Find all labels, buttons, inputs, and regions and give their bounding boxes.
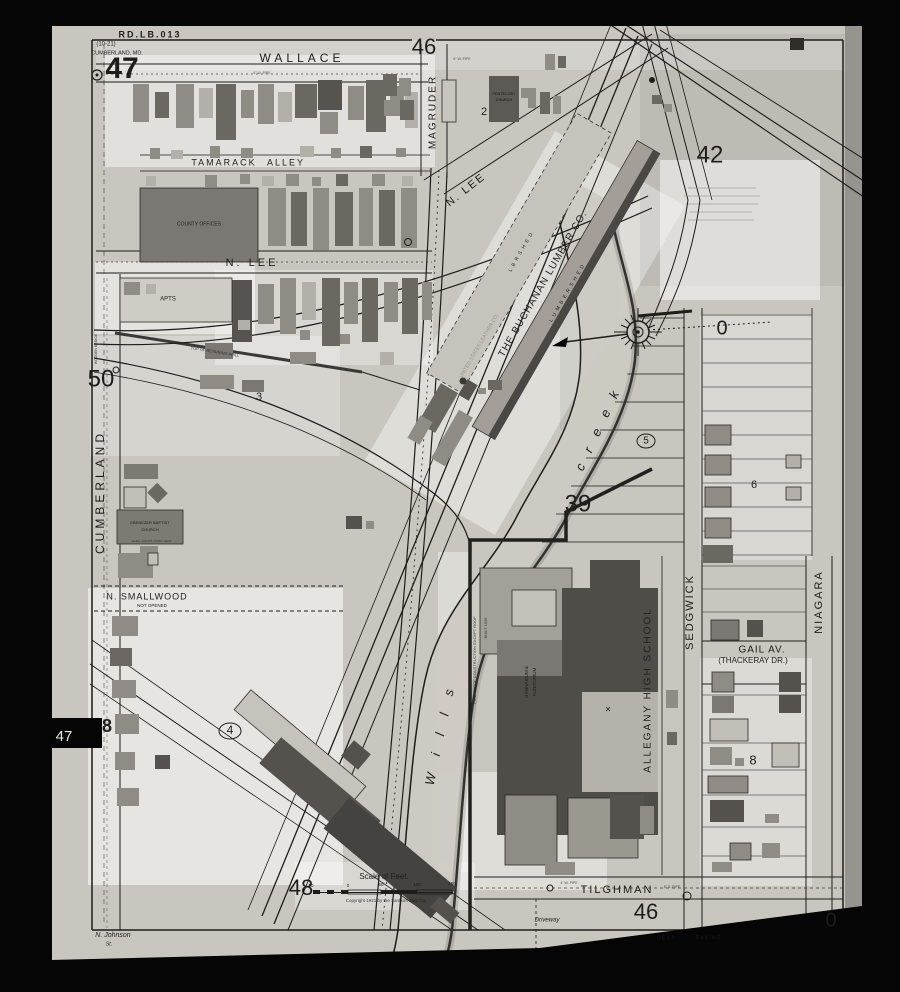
building: [384, 282, 398, 322]
building: [664, 104, 672, 112]
building: [772, 743, 799, 767]
building: [205, 175, 217, 187]
building: [545, 54, 555, 70]
building: [335, 192, 353, 246]
building: [262, 176, 274, 186]
edge-tab-47: 47: [56, 728, 73, 745]
adjacent-sheet-50: 50: [88, 365, 115, 392]
scan-black-margin: [0, 0, 900, 26]
copyright: Copyright 1921 by the Sanborn Map Co.: [346, 898, 427, 903]
building: [730, 843, 751, 860]
map-label: 6" W. PIPE: [253, 71, 271, 75]
building: [176, 84, 194, 128]
map-label: WOODEN BRIDGE: [94, 333, 98, 364]
building: [238, 320, 250, 330]
map-label: NOT OPENED: [137, 603, 167, 608]
utility-symbol: [649, 77, 655, 83]
building: [331, 148, 341, 158]
driveway-label: Driveway: [535, 918, 561, 924]
building: [291, 192, 307, 246]
map-label: 150: [448, 881, 456, 886]
building: [133, 84, 149, 122]
building: [528, 88, 536, 108]
map-label: R A V I N E: [695, 935, 721, 941]
building: [705, 518, 731, 538]
building: [210, 146, 220, 158]
street-tilghman: TILGHMAN: [581, 884, 654, 896]
street-gail-av: GAIL AV.: [738, 645, 785, 656]
building: [280, 278, 296, 334]
building: [124, 464, 158, 479]
building: [344, 282, 358, 324]
utility-symbol: [636, 330, 640, 334]
building: [497, 640, 562, 676]
building: [360, 146, 372, 158]
map-label: CHURCH: [496, 98, 513, 102]
allegany-high-school-label: ALLEGANY HIGH SCHOOL: [643, 607, 654, 772]
building: [300, 330, 310, 340]
building: [422, 282, 432, 320]
building: [779, 695, 801, 713]
building: [380, 352, 394, 365]
map-label: ALLEY: [267, 157, 305, 167]
block-8: 8: [749, 752, 756, 767]
building: [735, 758, 744, 766]
building: [402, 278, 418, 334]
block-5: 5: [643, 436, 649, 447]
sheet-edge-48: 8: [102, 716, 112, 736]
building: [399, 78, 411, 96]
building: [115, 752, 135, 770]
building: [318, 80, 342, 110]
building: [286, 174, 299, 186]
building: [366, 521, 374, 529]
building: [258, 284, 274, 324]
building: [488, 380, 502, 390]
building: [117, 788, 139, 806]
map-label: 50: [378, 882, 384, 887]
map-label: BUILT 1926: [483, 617, 488, 639]
building: [710, 747, 732, 765]
building: [779, 672, 801, 692]
building: [232, 280, 252, 342]
building: [240, 174, 250, 184]
map-label: PENTECOST: [492, 92, 516, 96]
map-label: 4" W. PIPE: [560, 881, 578, 885]
building: [400, 100, 414, 120]
building: [124, 487, 146, 508]
building: [708, 776, 748, 793]
building: [313, 188, 329, 250]
building: [155, 755, 170, 769]
street-cumberland: CUMBERLAND: [93, 430, 107, 554]
building: [112, 616, 138, 636]
map-label: (10-21): [96, 42, 115, 48]
building: [545, 862, 575, 875]
building: [505, 795, 557, 865]
building: [712, 672, 734, 692]
building: [478, 388, 486, 394]
building: [348, 86, 364, 120]
building: [442, 80, 456, 122]
map-label: ×: [605, 705, 611, 716]
building: [610, 795, 644, 839]
ebenezer-baptist-church-label: EBENEZER BAPTIST: [130, 520, 170, 525]
building: [295, 84, 317, 118]
map-label: 8" S. PIPE: [664, 885, 681, 889]
block-0-bottom: 0: [825, 909, 836, 931]
building: [359, 188, 373, 246]
building: [150, 148, 160, 159]
scan-patch: [660, 160, 820, 300]
sanborn-map-scan: (10-21)RD.LB.013CUMBERLAND, MD.4746WALLA…: [0, 0, 900, 992]
block-4: 4: [227, 723, 234, 737]
building: [667, 732, 677, 745]
building: [112, 680, 136, 698]
building: [711, 620, 739, 640]
building: [703, 545, 733, 563]
building: [346, 516, 362, 529]
building: [553, 96, 561, 114]
deep-ravine-label: D E E P: [657, 935, 675, 941]
building: [278, 92, 292, 122]
building: [384, 100, 396, 116]
adjacent-sheet-39: 39: [565, 490, 592, 517]
map-label: 6" W. PIPE: [453, 57, 471, 61]
building: [710, 800, 744, 822]
sheet-number-47: 47: [105, 52, 138, 85]
building: [313, 892, 453, 893]
map-label: GYMNASIUM &: [524, 666, 529, 698]
building: [512, 590, 556, 626]
street-magruder: MAGRUDER: [428, 75, 439, 149]
scale-title: Scale of Feet.: [359, 872, 408, 881]
apartments-label: APTS: [160, 297, 176, 303]
building: [790, 38, 804, 50]
building: [712, 862, 732, 872]
sanborn-map-svg: (10-21)RD.LB.013CUMBERLAND, MD.4746WALLA…: [0, 0, 900, 992]
building: [640, 806, 654, 834]
map-label: FIRE PROOF CONSTRUCTION EXCEPT ROOF: [472, 616, 477, 704]
n-johnson-label: N. Johnson: [95, 932, 131, 939]
adjacent-sheet-46-bottom: 46: [634, 899, 658, 924]
map-label: ELEC. LIGHTS, FURN. HEAT: [132, 539, 172, 543]
building: [705, 425, 731, 445]
scan-black-margin: [0, 0, 52, 992]
building: [383, 74, 397, 96]
adjacent-sheet-46-top: 46: [412, 34, 436, 59]
building: [300, 146, 314, 157]
building: [302, 282, 316, 320]
building: [199, 88, 213, 118]
building: [124, 282, 140, 295]
map-label: (THACKERAY DR.): [718, 656, 788, 665]
building: [710, 719, 748, 741]
block-2: 2: [481, 106, 487, 118]
scan-patch: [845, 26, 862, 960]
building: [155, 92, 169, 118]
block-0: 0: [716, 317, 727, 339]
building: [340, 334, 350, 344]
building: [200, 375, 234, 389]
building: [320, 112, 338, 134]
building: [140, 546, 158, 553]
scan-black-margin: [862, 0, 900, 992]
building: [110, 648, 132, 666]
scan-patch: [96, 40, 844, 70]
building: [148, 553, 158, 565]
building: [268, 188, 286, 246]
building: [786, 455, 801, 468]
map-label: St.: [106, 941, 113, 947]
building: [216, 84, 236, 140]
building: [312, 177, 321, 186]
building: [379, 190, 395, 246]
street-sedgwick: SEDGWICK: [684, 574, 696, 650]
building: [115, 714, 139, 734]
building: [146, 284, 156, 294]
building: [540, 92, 550, 114]
building: [652, 95, 662, 104]
block-6: 6: [751, 479, 757, 491]
map-label: CHURCH: [141, 527, 158, 532]
file-stamp: RD.LB.013: [118, 29, 181, 39]
building: [705, 487, 731, 507]
county-offices-label: COUNTY OFFICES: [177, 221, 222, 227]
building: [290, 352, 316, 364]
street-n-lee: N. LEE: [226, 257, 279, 269]
map-label: 100: [413, 882, 421, 887]
map-label: AUDITORIUM: [532, 668, 537, 697]
building: [590, 560, 640, 588]
block-3: 3: [256, 391, 262, 403]
building: [322, 278, 340, 346]
building: [558, 56, 566, 68]
street-tamarack-alley: TAMARACK: [191, 157, 256, 167]
building: [372, 174, 385, 186]
building: [336, 174, 348, 186]
building: [762, 843, 780, 858]
building: [258, 84, 274, 124]
building: [146, 176, 156, 186]
building: [362, 278, 378, 342]
street-wallace: WALLACE: [260, 51, 345, 65]
building: [171, 150, 183, 159]
building: [712, 696, 734, 713]
street-niagara: NIAGARA: [813, 570, 825, 634]
building: [402, 176, 413, 186]
building: [241, 90, 254, 118]
utility-symbol: [96, 74, 99, 77]
map-label: 50: [308, 883, 314, 888]
building: [521, 88, 529, 98]
building: [666, 690, 678, 708]
adjacent-sheet-42: 42: [697, 141, 724, 168]
building: [765, 814, 779, 823]
building: [705, 455, 731, 475]
building: [786, 487, 801, 500]
building: [747, 620, 763, 637]
building: [396, 148, 406, 157]
street-n-smallwood: N. SMALLWOOD: [106, 591, 187, 601]
